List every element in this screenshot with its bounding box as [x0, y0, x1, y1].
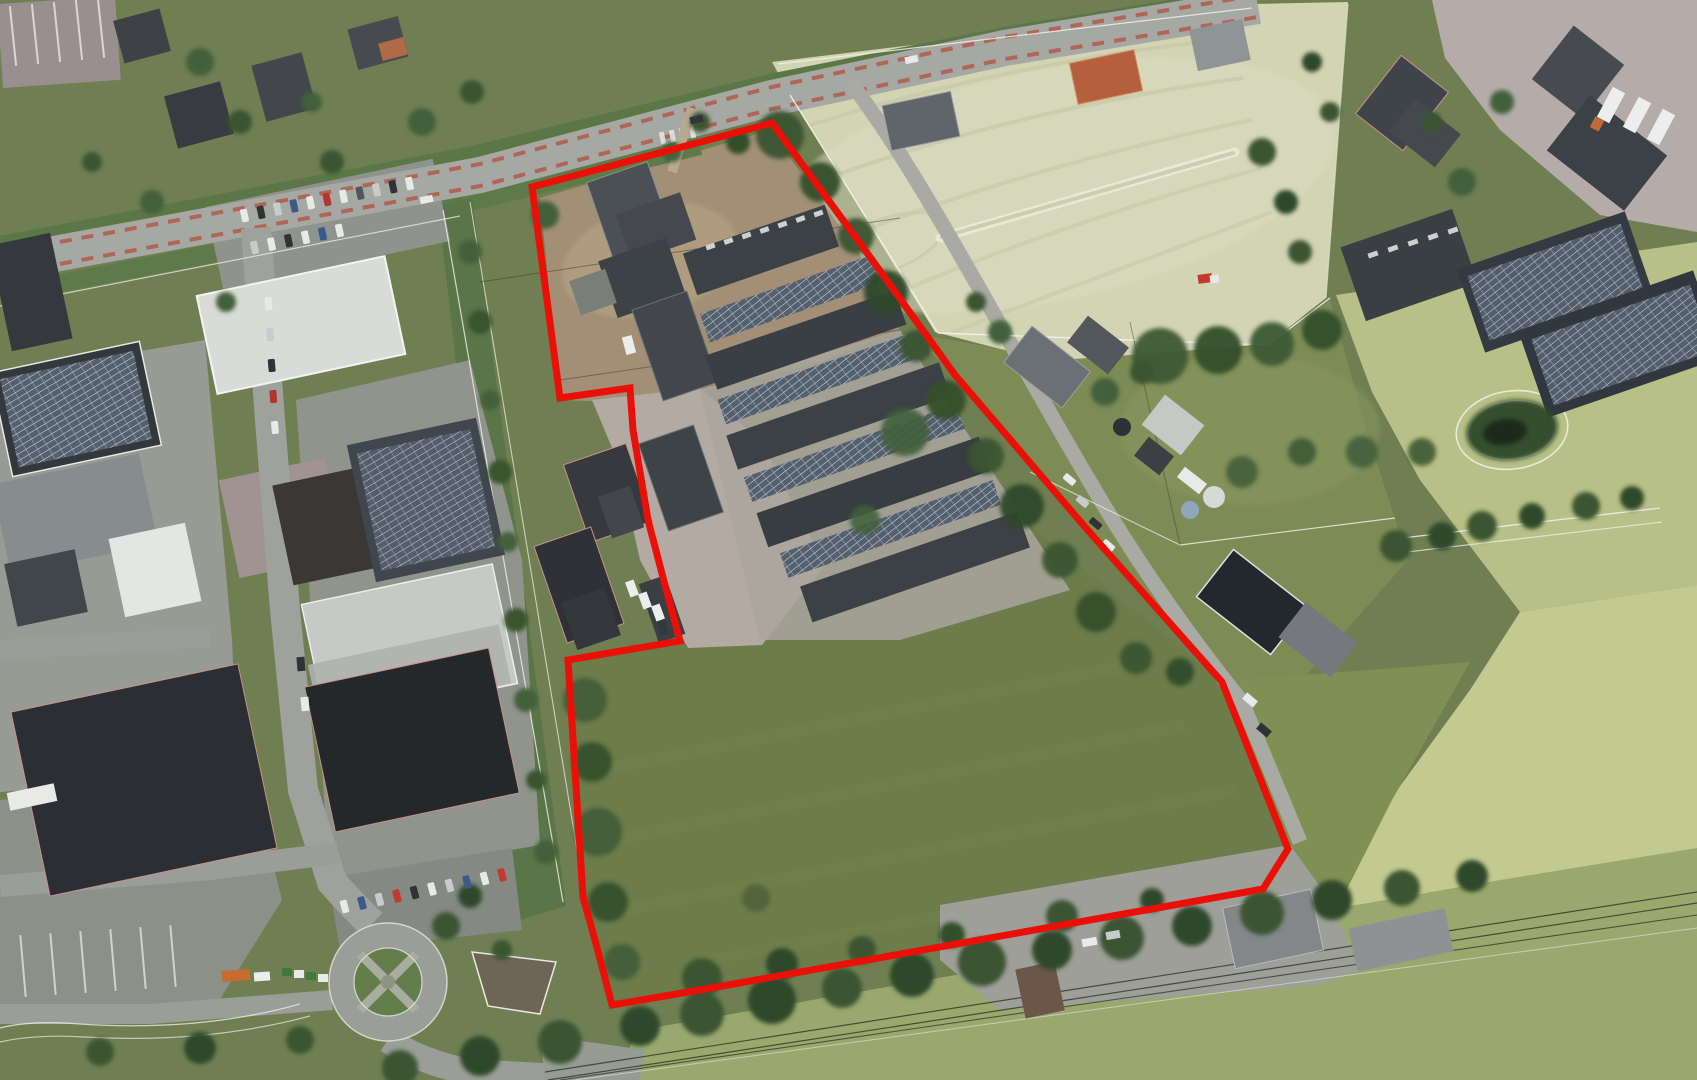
- tree: [1042, 542, 1078, 578]
- tree: [1076, 592, 1116, 632]
- tree: [302, 92, 322, 112]
- aerial-map-canvas[interactable]: [0, 0, 1697, 1080]
- tree: [1032, 930, 1072, 970]
- car-row-street: [266, 328, 274, 342]
- hedge: [488, 460, 512, 484]
- bin-white: [294, 970, 304, 978]
- tree: [890, 953, 934, 997]
- bin-white: [318, 974, 328, 982]
- tree: [1302, 52, 1322, 72]
- tree: [228, 110, 252, 134]
- tree-shadow-field: [742, 884, 770, 912]
- tractor-trailer: [1209, 274, 1219, 283]
- tree: [432, 912, 460, 940]
- tree: [140, 190, 164, 214]
- tree: [850, 505, 880, 535]
- tree: [1312, 880, 1352, 920]
- hedge: [504, 608, 528, 632]
- tree: [588, 882, 628, 922]
- hedge: [498, 532, 518, 552]
- car-row-street: [264, 297, 272, 311]
- tree: [1194, 326, 1242, 374]
- tree: [1226, 456, 1258, 488]
- tree: [1448, 168, 1476, 196]
- truck-orange-rb: [222, 969, 251, 982]
- tree: [881, 408, 929, 456]
- tree: [460, 1036, 500, 1076]
- tree: [604, 944, 640, 980]
- bin-green: [306, 972, 316, 980]
- tree: [966, 292, 986, 312]
- tree: [1428, 522, 1456, 550]
- garden-tent: [1203, 486, 1225, 508]
- tree: [1130, 360, 1154, 384]
- tree: [1380, 530, 1412, 562]
- tree: [968, 438, 1004, 474]
- tree: [1274, 190, 1298, 214]
- car-row-street: [268, 359, 276, 373]
- tree: [1408, 438, 1436, 466]
- tree: [1000, 484, 1044, 528]
- tree: [184, 1032, 216, 1064]
- tree: [988, 320, 1012, 344]
- tree: [216, 292, 236, 312]
- tree: [1302, 310, 1342, 350]
- tree: [1519, 503, 1545, 529]
- car: [296, 657, 305, 672]
- tree: [1250, 322, 1294, 366]
- pool: [1181, 501, 1199, 519]
- tree: [320, 150, 344, 174]
- tree: [1166, 658, 1194, 686]
- tree: [538, 1020, 582, 1064]
- tree: [1172, 906, 1212, 946]
- hedge: [468, 310, 492, 334]
- roundabout-center: [381, 975, 395, 989]
- tree: [620, 1006, 660, 1046]
- hedge: [480, 390, 500, 410]
- hedge: [534, 840, 558, 864]
- tree: [1620, 486, 1644, 510]
- solar-array: [357, 429, 495, 570]
- hedge: [526, 770, 546, 790]
- building-white-small: [109, 523, 202, 617]
- car-row-street: [271, 421, 279, 435]
- tree: [1572, 492, 1600, 520]
- tree: [1422, 112, 1442, 132]
- trampoline: [1113, 418, 1131, 436]
- tree: [1288, 240, 1312, 264]
- tree: [1490, 90, 1514, 114]
- tree: [1384, 870, 1420, 906]
- tree: [680, 992, 724, 1036]
- hedge: [514, 688, 538, 712]
- tree: [460, 80, 484, 104]
- tree: [1248, 138, 1276, 166]
- hedge: [458, 240, 482, 264]
- tree: [1467, 511, 1497, 541]
- tree: [82, 152, 102, 172]
- tree: [1091, 378, 1119, 406]
- tree: [286, 1026, 314, 1054]
- tree: [1120, 642, 1152, 674]
- road-west-1: [0, 637, 210, 650]
- bin-green: [282, 968, 292, 976]
- tree: [1240, 891, 1284, 935]
- tree: [822, 968, 862, 1008]
- tree: [408, 108, 436, 136]
- van-white-rb: [254, 971, 271, 981]
- tree: [186, 48, 214, 76]
- aerial-map-viewport[interactable]: [0, 0, 1697, 1080]
- car: [300, 697, 309, 712]
- tree: [1456, 860, 1488, 892]
- tree: [86, 1038, 114, 1066]
- car-row-street: [269, 390, 277, 404]
- tree: [492, 940, 512, 960]
- tree: [1346, 436, 1378, 468]
- tree: [1320, 102, 1340, 122]
- tree: [1288, 438, 1316, 466]
